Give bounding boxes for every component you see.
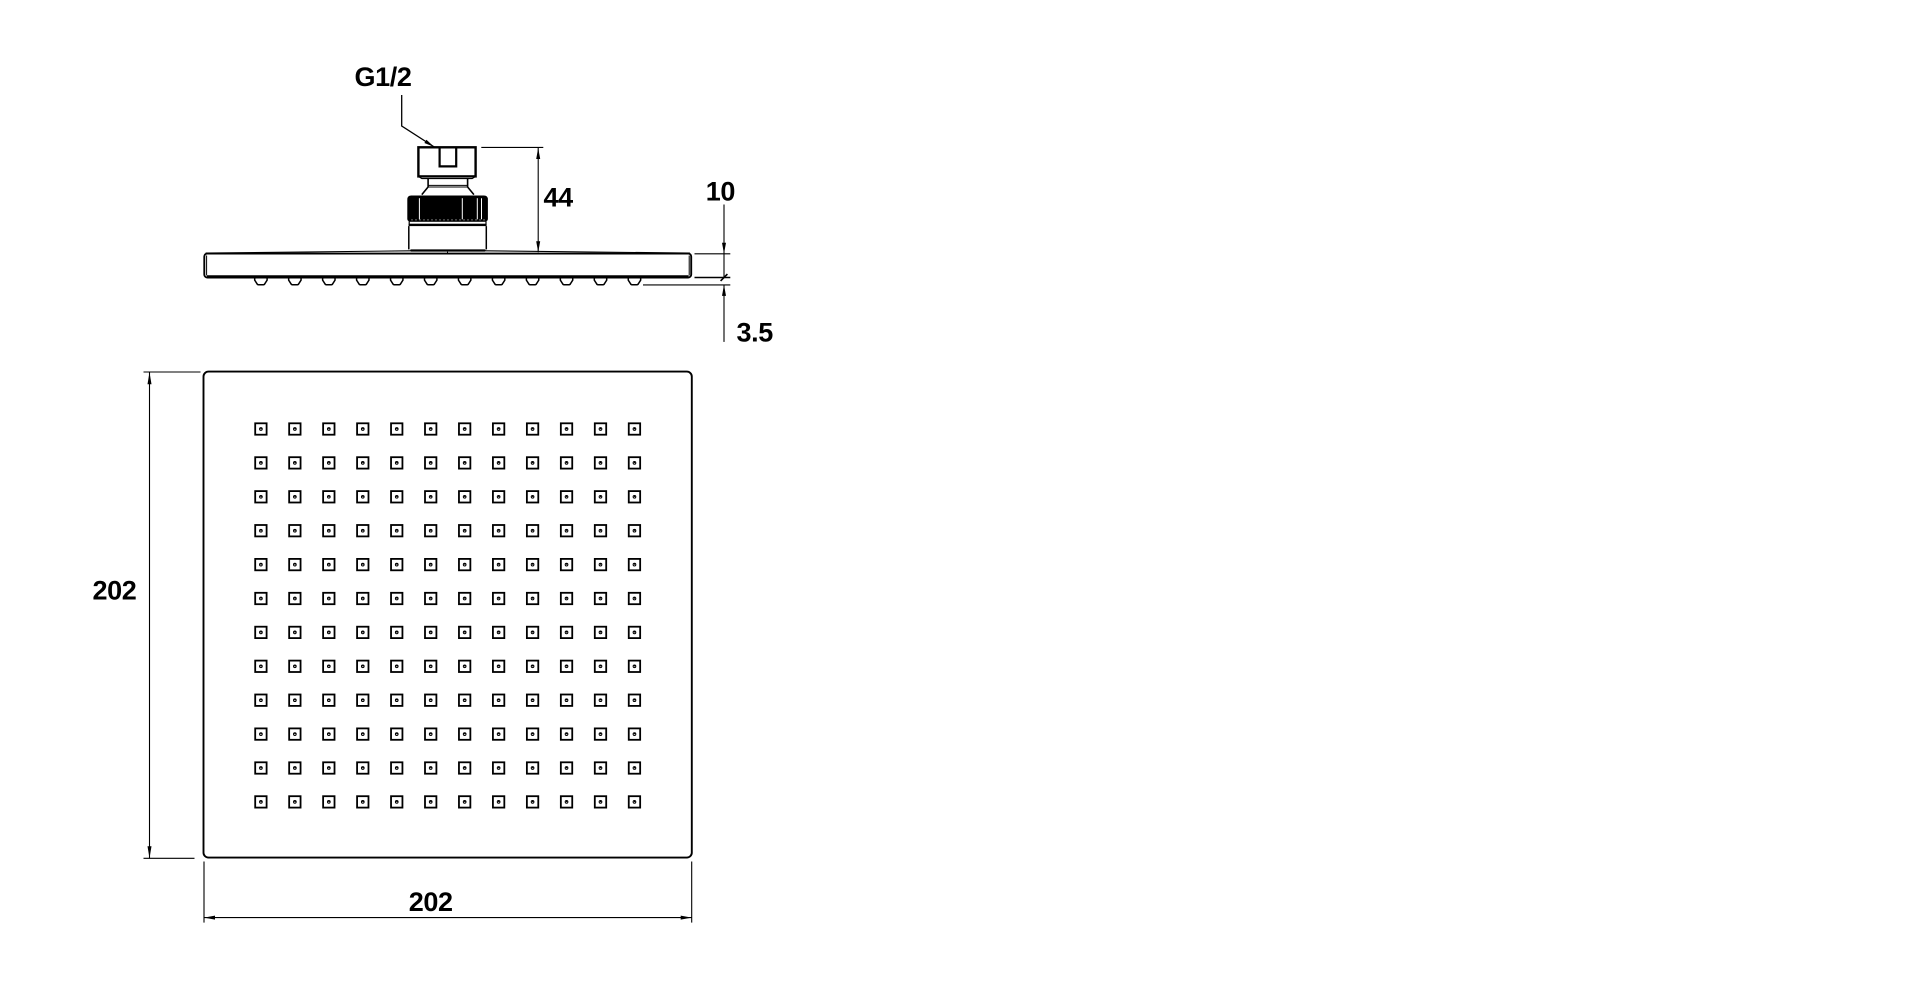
svg-text:G1/2: G1/2 xyxy=(355,62,412,92)
svg-text:202: 202 xyxy=(93,576,137,606)
svg-text:44: 44 xyxy=(544,183,574,213)
svg-text:10: 10 xyxy=(706,177,735,207)
svg-text:3.5: 3.5 xyxy=(737,318,774,348)
svg-text:202: 202 xyxy=(409,887,453,917)
